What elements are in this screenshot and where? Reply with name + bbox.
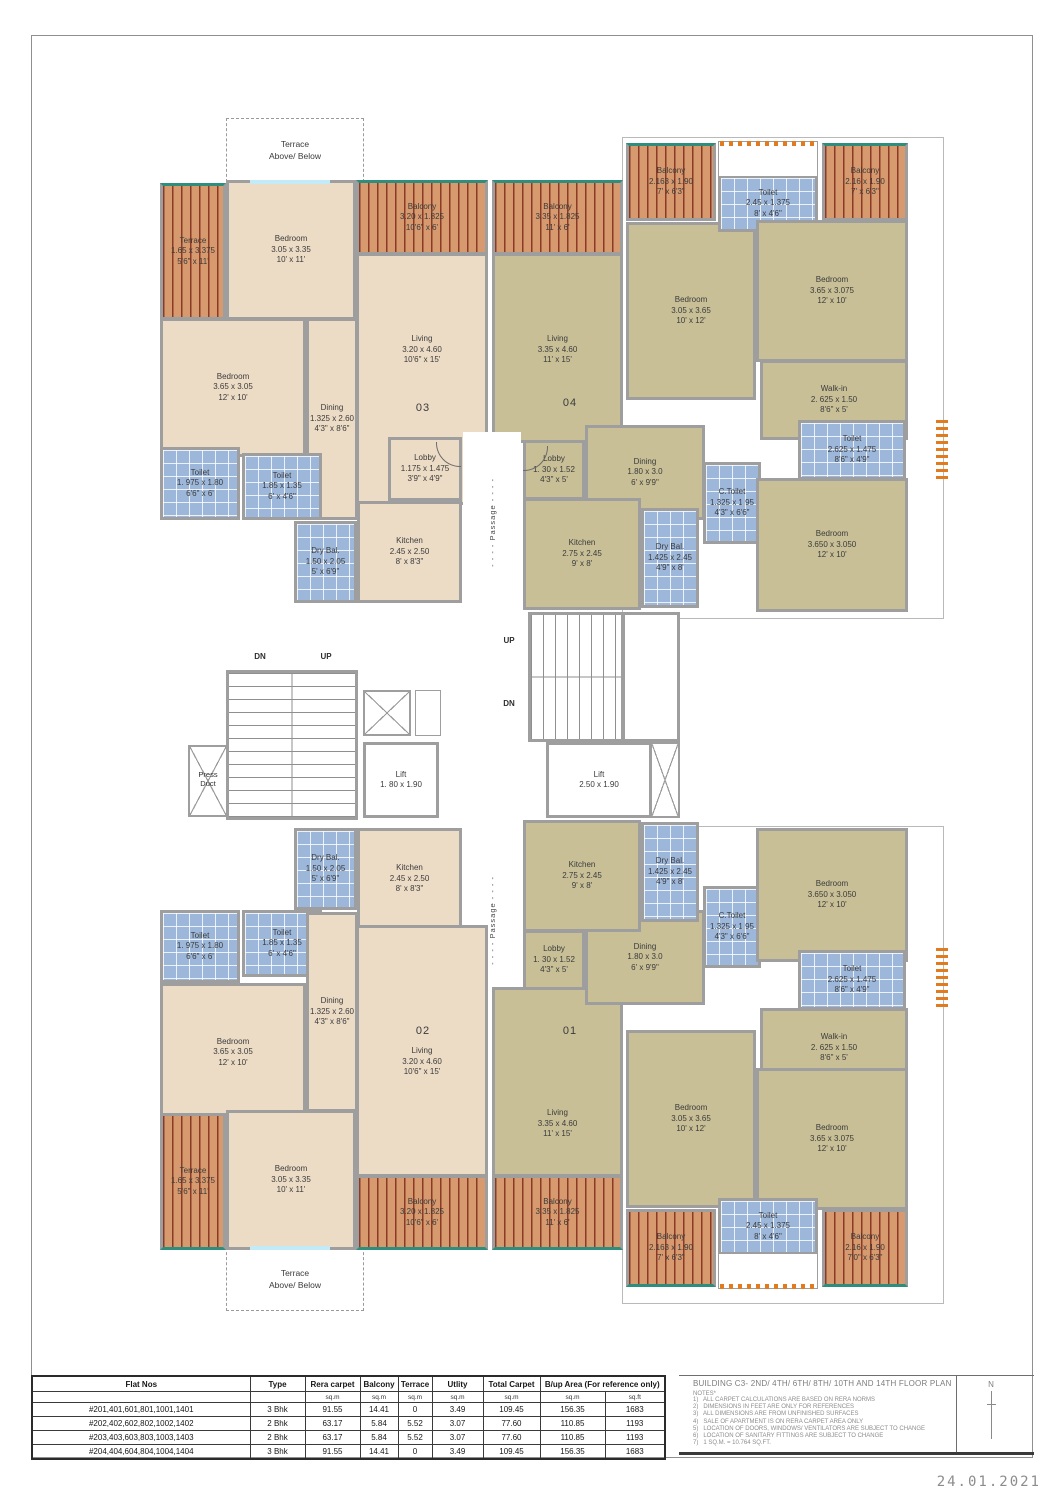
date-stamp: 24.01.2021 [937,1474,1041,1490]
orange-hatch-bottom [720,1284,816,1289]
room-bedroom1-u04: Bedroom3.05 x 3.6510' x 12' [626,222,756,400]
staircase-right [528,612,624,742]
room-balcony-left-u01: Balcony3.35 x 1.82511' x 6' [492,1175,623,1250]
room-kitchen-u03: Kitchen2.45 x 2.508' x 8'3" [357,501,462,603]
col-bup-area: B/up Area (For reference only) [540,1376,665,1392]
room-bedroom1-u01: Bedroom3.05 x 3.6510' x 12' [626,1030,756,1208]
shaft-xbox-right [650,742,680,818]
area-table: Flat Nos Type Rera carpet Balcony Terrac… [31,1375,665,1460]
press-duct-label: PressDuct [186,770,230,788]
room-terrace-u02: Terrace1.65 x 3.3755'6" x 11' [160,1113,226,1250]
room-balcony-left-u04: Balcony3.35 x 1.82511' x 6' [492,180,623,255]
room-bedroom2-u01: Bedroom3.65 x 3.07512' x 10' [756,1068,908,1210]
room-balcony1-u04: Balcony2.163 x 1.907' x 6'3" [626,143,716,221]
room-bedroom-top-u03: Bedroom3.05 x 3.3510' x 11' [226,180,356,320]
room-kitchen-u01: Kitchen2.75 x 2.459' x 8' [523,820,641,932]
table-row: #202,402,602,802,1002,14022 Bhk63.175.84… [32,1417,665,1431]
terrace-above-below-bottom: TerraceAbove/ Below [226,1247,364,1311]
room-drybal-u03: Dry Bal.1.50 x 2.055' x 6'9" [294,521,357,603]
room-balcony-u02: Balcony3.20 x 1.82510'6" x 6' [356,1175,488,1250]
floor-plan-sheet: TerraceAbove/ Below TerraceAbove/ Below … [0,0,1063,1509]
room-kitchen-u02: Kitchen2.45 x 2.508' x 8'3" [357,828,462,930]
window [250,180,330,184]
room-balcony-u03: Balcony3.20 x 1.82510'6" x 6' [356,180,488,255]
orange-hatch-top [720,141,816,146]
room-kitchen-u04: Kitchen2.75 x 2.459' x 8' [523,498,641,610]
room-living-u04: Living3.35 x 4.6011' x 15' [492,253,623,443]
staircase-left [226,670,358,820]
col-rera-carpet: Rera carpet [305,1376,360,1392]
room-balcony1-u01: Balcony2.163 x 1.907' x 6'3" [626,1209,716,1287]
table-row: #201,401,601,801,1001,14013 Bhk91.5514.4… [32,1403,665,1417]
room-toilet-bottom-u01: Toilet2.45 x 1.3758' x 4'6" [718,1198,818,1255]
duct-small [415,690,441,736]
ladder-hatch-bottom [936,948,948,1010]
table-row: #203,403,603,803,1003,14032 Bhk63.175.84… [32,1431,665,1445]
col-flat-nos: Flat Nos [32,1376,250,1392]
col-type: Type [250,1376,305,1392]
table-units-row: sq.m sq.m sq.m sq.m sq.m sq.m sq.ft [32,1392,665,1403]
north-label: N [956,1380,1026,1389]
drawing-title: BUILDING C3- 2ND/ 4TH/ 6TH/ 8TH/ 10TH AN… [693,1379,952,1388]
north-arrow: N [956,1380,1026,1439]
window [250,1246,330,1250]
col-balcony: Balcony [360,1376,398,1392]
room-ctoilet-u01: C.Toilet1.325 x 1.954'3" x 6'6" [703,886,761,968]
room-lobby-u01: Lobby1. 30 x 1.524'3" x 5' [523,930,585,990]
room-bedroom-left-u02: Bedroom3.65 x 3.0512' x 10' [160,983,306,1122]
room-toilet-right-u04: Toilet2.625 x 1.4758'6" x 4'9" [798,420,906,480]
stair-dn-label-right: DN [494,699,524,708]
table-row: #204,404,604,804,1004,14043 Bhk91.5514.4… [32,1445,665,1460]
col-total-carpet: Total Carpet [483,1376,540,1392]
room-bedroom-bottom-u02: Bedroom3.05 x 3.3510' x 11' [226,1110,356,1250]
room-terrace-u03: Terrace1.65 x 3.3755'6" x 11' [160,183,226,320]
room-toilet1-u02: Toilet1. 975 x 1.806'6" x 6' [160,910,240,983]
room-toilet-right-u01: Toilet2.625 x 1.4758'6" x 4'9" [798,950,906,1010]
room-living-u01: Living3.35 x 4.6011' x 15' [492,987,623,1177]
room-toilet1-u03: Toilet1. 975 x 1.806'6" x 6' [160,447,240,520]
notes-list: 1) ALL CARPET CALCULATIONS ARE BASED ON … [693,1397,952,1447]
room-toilet2-u03: Toilet1.85 x 1.356' x 4'6" [242,453,322,520]
title-block: BUILDING C3- 2ND/ 4TH/ 6TH/ 8TH/ 10TH AN… [679,1375,1034,1455]
stair-landing-right [622,612,680,742]
passage-top: - - - - Passage - - - - [463,432,521,612]
table-body: #201,401,601,801,1001,14013 Bhk91.5514.4… [32,1403,665,1460]
unit-number-02: 02 [393,1025,453,1037]
room-bedroom3-u01: Bedroom3.650 x 3.05012' x 10' [756,828,908,962]
room-bedroom2-u04: Bedroom3.65 x 3.07512' x 10' [756,220,908,362]
room-dining-u02: Dining1.325 x 2.604'3" x 8'6" [306,912,358,1112]
utility-strip-top [718,141,818,177]
table-header-row: Flat Nos Type Rera carpet Balcony Terrac… [32,1376,665,1392]
room-ctoilet-u04: C.Toilet1.325 x 1.954'3" x 6'6" [703,462,761,544]
stair-up-label-right: UP [494,636,524,645]
ladder-hatch-top [936,420,948,482]
unit-number-03: 03 [393,402,453,414]
room-drybal-u04: Dry Bal.1.425 x 2.454'9" x 8' [641,508,699,608]
room-drybal-u02: Dry Bal.1.50 x 2.055' x 6'9" [294,828,357,910]
notes-block: BUILDING C3- 2ND/ 4TH/ 6TH/ 8TH/ 10TH AN… [679,1376,957,1452]
lift-small: Lift1. 80 x 1.90 [363,742,439,818]
north-arrow-line [991,1391,992,1439]
room-bedroom-left-u03: Bedroom3.65 x 3.0512' x 10' [160,318,306,457]
unit-number-01: 01 [540,1025,600,1037]
stair-up-label: UP [306,652,346,661]
col-terrace: Terrace [398,1376,432,1392]
shaft-xbox-left [363,690,411,736]
room-bedroom3-u04: Bedroom3.650 x 3.05012' x 10' [756,478,908,612]
lift-large: Lift2.50 x 1.90 [546,742,652,818]
stair-dn-label: DN [240,652,280,661]
room-drybal-u01: Dry Bal.1.425 x 2.454'9" x 8' [641,822,699,922]
terrace-above-below-top: TerraceAbove/ Below [226,118,364,182]
room-balcony2-u01: Balcony2.16 x 1.907'0" x 6'3" [822,1209,908,1287]
col-utility: Utlity [432,1376,483,1392]
room-balcony2-u04: Balcony2.16 x 1.907' x 6'3" [822,143,908,221]
unit-number-04: 04 [540,397,600,409]
room-living-u02: Living3.20 x 4.6010'6" x 15' [356,925,488,1177]
